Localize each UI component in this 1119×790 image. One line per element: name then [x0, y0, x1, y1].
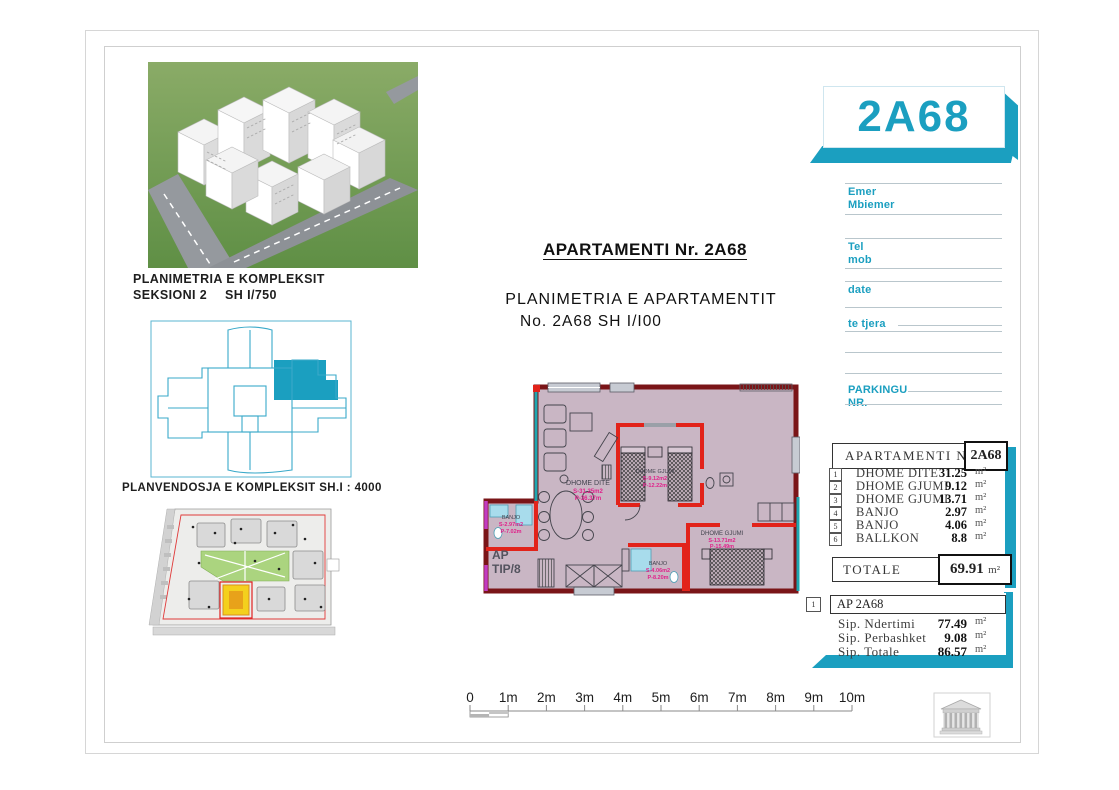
scale-label: 6m: [690, 690, 709, 705]
row-num: 1: [829, 468, 842, 481]
scale-label: 7m: [728, 690, 747, 705]
form-line[interactable]: [845, 281, 1002, 282]
plan-sheet: { "colors":{"accent":"#1b9fc0","wall_dar…: [0, 0, 1119, 790]
architecture-firm-logo: [933, 692, 993, 742]
form-label-tetjera: te tjera: [848, 318, 886, 330]
summary-row-unit: m²: [975, 616, 986, 627]
area-table-total-label: TOTALE: [843, 562, 901, 578]
form-line[interactable]: [845, 268, 1002, 269]
row-num: 3: [829, 494, 842, 507]
row-num: 6: [829, 533, 842, 546]
card-shadow-bottom: [810, 146, 1015, 163]
apartment-floor-plan: DHOME DITE S-31.25m2 P-36.37m DHOME GJUM…: [478, 377, 800, 605]
apartment-type-label-1: AP: [492, 548, 509, 562]
room-perim-bedroom1: P-12.22m: [643, 483, 667, 489]
section-plan-drawing: [150, 320, 352, 478]
scale-label: 8m: [766, 690, 785, 705]
apartment-type-label-2: TIP/8: [492, 562, 521, 576]
form-label-date: date: [848, 284, 871, 296]
site-plan-drawing: [145, 503, 341, 641]
form-label-mbiemer: Mbiemer: [848, 199, 895, 211]
area-table-total-value: 69.91: [950, 561, 984, 577]
room-label-bath2: BANJO: [649, 561, 668, 567]
row-num: 2: [829, 481, 842, 494]
room-area-bedroom1: S-9.12m2: [643, 476, 667, 482]
row-unit: m²: [975, 466, 986, 477]
siteplan-caption: PLANVENDOSJA E KOMPLEKSIT SH.I : 4000: [122, 482, 382, 494]
room-label-living: DHOME DITE: [566, 480, 610, 487]
main-title: APARTAMENTI Nr. 2A68: [480, 240, 810, 260]
form-line[interactable]: [845, 238, 1002, 239]
summary-row-value: 86.57: [905, 644, 967, 660]
room-perim-living: P-36.37m: [575, 496, 601, 502]
area-table-total-box: 69.91 m²: [938, 554, 1012, 585]
summary-header: AP 2A68: [830, 595, 1006, 614]
room-label-bath1: BANJO: [502, 515, 521, 521]
form-line[interactable]: [845, 183, 1002, 184]
apartment-card: 2A68: [823, 86, 1005, 148]
apartment-card-label: 2A68: [857, 92, 970, 142]
complex-caption-line1: PLANIMETRIA E KOMPLEKSIT: [133, 271, 325, 287]
row-num: 4: [829, 507, 842, 520]
form-label-nr: NR.: [848, 397, 868, 409]
form-line[interactable]: [845, 307, 1002, 308]
form-line[interactable]: [845, 373, 1002, 374]
form-label-emer: Emer: [848, 186, 876, 198]
area-table-header-value: 2A68: [970, 448, 1001, 463]
row-unit: m²: [975, 518, 986, 529]
row-unit: m²: [975, 505, 986, 516]
area-table-total-unit: m²: [988, 564, 1000, 576]
row-unit: m²: [975, 492, 986, 503]
room-area-bath2: S-4.06m2: [646, 568, 670, 574]
scale-label: 10m: [839, 690, 865, 705]
area-table-header-label: APARTAMENTI NR.: [845, 448, 982, 464]
scale-label: 0: [466, 690, 474, 705]
complex-3d-render: [148, 62, 418, 268]
form-line[interactable]: [845, 331, 1002, 332]
form-line[interactable]: [845, 214, 1002, 215]
scale-label: 5m: [652, 690, 671, 705]
summary-row-label: Sip. Totale: [838, 644, 899, 660]
summary-index: 1: [806, 597, 821, 612]
form-label-tel: Tel: [848, 241, 864, 253]
complex-caption: PLANIMETRIA E KOMPLEKSIT SEKSIONI 2 SH I…: [133, 271, 325, 303]
row-unit: m²: [975, 479, 986, 490]
summary-header-label: AP 2A68: [837, 597, 883, 612]
form-line[interactable]: [908, 391, 1002, 392]
form-line[interactable]: [845, 404, 1002, 405]
room-label-bedroom1: DHOME GJUMI: [635, 469, 675, 475]
form-line[interactable]: [898, 325, 1002, 326]
summary-row-unit: m²: [975, 630, 986, 641]
subtitle-1: PLANIMETRIA E APARTAMENTIT: [466, 291, 816, 309]
summary-row-unit: m²: [975, 644, 986, 655]
scale-label: 1m: [499, 690, 518, 705]
room-label-bedroom2: DHOME GJUMI: [701, 531, 744, 537]
room-area-living: S-31.25m2: [573, 489, 603, 495]
room-area-bath1: S-2.97m2: [499, 522, 523, 528]
row-unit: m²: [975, 531, 986, 542]
row-value: 8.8: [905, 531, 967, 546]
scale-label: 9m: [804, 690, 823, 705]
room-perim-bath2: P-8.20m: [647, 575, 668, 581]
scale-label: 4m: [613, 690, 632, 705]
scale-label: 3m: [575, 690, 594, 705]
form-label-parkingu: PARKINGU: [848, 384, 907, 396]
scale-label: 2m: [537, 690, 556, 705]
subtitle-2: No. 2A68 SH I/I00: [520, 313, 662, 331]
form-label-mob: mob: [848, 254, 872, 266]
row-num: 5: [829, 520, 842, 533]
room-perim-bedroom2: P-15.49m: [710, 544, 734, 550]
scale-bar: 0 1m 2m 3m 4m 5m 6m 7m 8m 9m 10m: [458, 690, 892, 724]
form-line[interactable]: [845, 352, 1002, 353]
complex-caption-line2: SEKSIONI 2 SH I/750: [133, 287, 325, 303]
room-perim-bath1: P-7.02m: [500, 529, 521, 535]
